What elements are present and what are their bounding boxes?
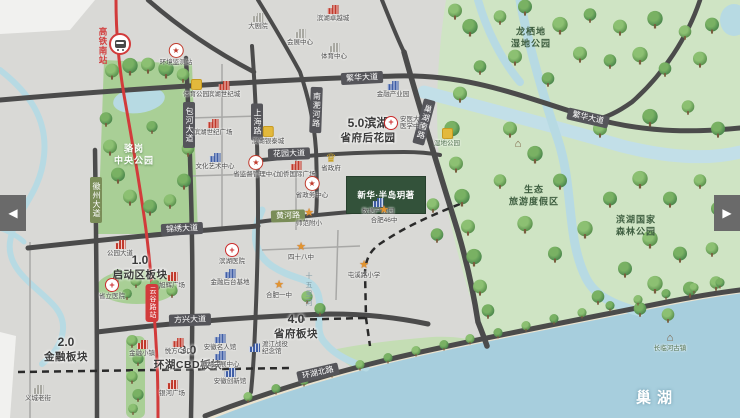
poi-label: 金融小镇	[129, 350, 155, 357]
poi-滨湖会展中心: 滨湖会展中心	[201, 351, 240, 368]
red-marker-icon	[167, 380, 178, 389]
poi-label: 体育公园	[183, 91, 209, 98]
house-marker-icon: ⌂	[667, 333, 674, 344]
poi-体育中心: 体育中心	[321, 43, 347, 60]
poi-渡江战役 纪念馆: 渡江战役 纪念馆	[249, 340, 288, 356]
poi-会展中心: 会展中心	[287, 29, 313, 46]
poi-label: 安医大 医学中心	[400, 116, 426, 131]
road-badge-方兴大道: 方兴大道	[169, 313, 211, 326]
poi-安徽名人馆: 安徽名人馆	[204, 334, 237, 351]
poi-环境监测站: ★环境监测站	[160, 43, 193, 66]
poi-house: ⌂	[515, 139, 522, 150]
poi-安医大 医学中心: +安医大 医学中心	[384, 115, 426, 131]
poi-label: 四十八中	[288, 254, 314, 261]
poi-label: 文化艺术中心	[196, 163, 235, 170]
poi-滨湖世纪广场: 滨湖世纪广场	[194, 119, 233, 136]
star-marker-icon: ★	[249, 155, 264, 170]
poi-label: 环境监测站	[160, 59, 193, 66]
grayb-marker-icon	[329, 43, 340, 52]
poi-label: 师范附小	[296, 220, 322, 227]
poi-label: 义城老街	[25, 395, 51, 402]
road-badge-南淝河路: 南淝河路	[309, 87, 323, 133]
gold-marker-icon	[263, 126, 274, 137]
road-badge-锦绣大道: 锦绣大道	[161, 222, 204, 236]
road-badge-徽州大道: 徽州大道	[90, 177, 102, 223]
poi-label: 屯溪路小学	[348, 272, 381, 279]
poi-label: 滨湖银泰城	[252, 138, 285, 145]
blue-marker-icon	[225, 269, 236, 278]
blue-marker-icon	[249, 344, 260, 353]
poi-湿地公园: 湿地公园	[434, 128, 460, 147]
poi-label: 省监督管理中心	[233, 171, 279, 178]
school-marker-icon: ★	[359, 260, 369, 271]
poi-label: 会展中心	[287, 39, 313, 46]
poi-label: 湿地公园	[434, 140, 460, 147]
poi-文化艺术中心: 文化艺术中心	[196, 153, 235, 170]
poi-省政府: ♛省政府	[321, 152, 341, 172]
water-label: 十五里河	[303, 272, 313, 308]
poi-label: 长临河古镇	[654, 345, 687, 352]
poi-滨湖银泰城: 滨湖银泰城	[252, 126, 285, 145]
red-marker-icon	[291, 161, 302, 170]
red-marker-icon	[115, 240, 126, 249]
poi-label: 安徽创新馆	[214, 378, 247, 385]
cross-marker-icon: +	[225, 243, 239, 257]
poi-义城老街: 义城老街	[25, 385, 51, 402]
map-stage: 新华·半岛玥著 高铁南站 云谷路站 1.0启动区板块2.0金融板块3.0环湖CB…	[0, 0, 740, 418]
poi-滨湖卓越城: 滨湖卓越城	[317, 5, 350, 22]
poi-label: 旭辉广场	[159, 282, 185, 289]
poi-label: 滨湖卓越城	[317, 15, 350, 22]
school-marker-icon: ★	[274, 280, 284, 291]
poi-label: 滨湖世纪城	[208, 91, 241, 98]
poi-label: 省政府	[321, 165, 341, 172]
red-marker-icon	[167, 272, 178, 281]
poi-合肥一中: ★合肥一中	[266, 280, 292, 299]
red-marker-icon	[328, 5, 339, 14]
poi-师范附小: ★师范附小	[296, 208, 322, 227]
park-marker-icon	[442, 128, 453, 139]
park-label: 龙栖地 湿地公园	[511, 26, 551, 49]
poi-label: 渡江战役 纪念馆	[262, 341, 288, 356]
cross-marker-icon: +	[105, 278, 119, 292]
school-marker-icon: ★	[296, 242, 306, 253]
grayb-marker-icon	[253, 13, 264, 22]
poi-金融小镇: 金融小镇	[129, 340, 155, 357]
poi-省立医院: +省立医院	[99, 278, 125, 300]
labels-layer: 新华·半岛玥著 高铁南站 云谷路站 1.0启动区板块2.0金融板块3.0环湖CB…	[0, 0, 740, 418]
red-marker-icon	[208, 119, 219, 128]
star-marker-icon: ★	[169, 43, 184, 58]
poi-银河广场: 银河广场	[159, 380, 185, 397]
train-station-icon	[109, 33, 131, 55]
poi-省监督管理中心: ★省监督管理中心	[233, 155, 279, 178]
poi-合肥46中: ★合肥46中	[371, 205, 398, 224]
poi-悦方CBD: 悦方CBD	[165, 338, 192, 355]
blue-marker-icon	[388, 81, 399, 90]
poi-长临河古镇: ⌂长临河古镇	[654, 333, 687, 352]
blue-marker-icon	[215, 334, 226, 343]
carousel-prev-button[interactable]: ◀	[0, 195, 26, 231]
poi-金融产业园: 金融产业园	[377, 81, 410, 98]
grayb-marker-icon	[33, 385, 44, 394]
red-marker-icon	[137, 340, 148, 349]
school-marker-icon: ★	[379, 205, 389, 216]
zone-label-2.0: 2.0金融板块	[44, 336, 88, 364]
road-badge-环湖北路: 环湖北路	[296, 362, 340, 383]
poi-滨湖医院: +滨湖医院	[219, 243, 245, 265]
carousel-next-button[interactable]: ▶	[714, 195, 740, 231]
metro-station-badge: 云谷路站	[146, 284, 159, 322]
zone-label-4.0: 4.0省府板块	[274, 313, 318, 341]
poi-屯溪路小学: ★屯溪路小学	[348, 260, 381, 279]
poi-label: 金融产业园	[377, 91, 410, 98]
poi-金融后台基地: 金融后台基地	[211, 269, 250, 286]
poi-省政务中心: ★省政务中心	[296, 176, 329, 199]
poi-label: 省政务中心	[296, 192, 329, 199]
school-marker-icon: ★	[304, 208, 314, 219]
poi-体育公园: 体育公园	[183, 79, 209, 98]
poi-四十八中: ★四十八中	[288, 242, 314, 261]
poi-公园大道: 公园大道	[107, 240, 133, 257]
poi-label: 滨湖世纪广场	[194, 129, 233, 136]
road-badge-繁华大道: 繁华大道	[566, 107, 610, 128]
poi-label: 体育中心	[321, 53, 347, 60]
poi-label: 合肥一中	[266, 292, 292, 299]
blue-marker-icon	[215, 351, 226, 360]
poi-label: 大剧院	[248, 23, 268, 30]
water-label: 巢湖	[636, 387, 678, 408]
crown-marker-icon: ♛	[326, 152, 337, 164]
cross-marker-icon: +	[384, 116, 398, 130]
poi-label: 合肥46中	[371, 217, 398, 224]
park-label: 生态 旅游度假区	[509, 184, 559, 207]
park-label: 滨湖国家 森林公园	[616, 214, 656, 237]
hsr-station-label: 高铁南站	[97, 27, 109, 65]
park-label: 骆岗 中央公园	[114, 143, 154, 166]
poi-label: 金融后台基地	[211, 279, 250, 286]
red-marker-icon	[219, 81, 230, 90]
grayb-marker-icon	[295, 29, 306, 38]
poi-label: 银河广场	[159, 390, 185, 397]
star-marker-icon: ★	[305, 176, 320, 191]
poi-label: 滨湖医院	[219, 258, 245, 265]
gold-marker-icon	[191, 79, 202, 90]
poi-大剧院: 大剧院	[248, 13, 268, 30]
poi-label: 省立医院	[99, 293, 125, 300]
poi-滨湖世纪城: 滨湖世纪城	[208, 81, 241, 98]
blue-marker-icon	[225, 368, 236, 377]
poi-label: 悦方CBD	[165, 348, 192, 355]
house-marker-icon: ⌂	[515, 139, 522, 150]
poi-label: 公园大道	[107, 250, 133, 257]
poi-旭辉广场: 旭辉广场	[159, 272, 185, 289]
blue-marker-icon	[210, 153, 221, 162]
red-marker-icon	[172, 338, 183, 347]
poi-安徽创新馆: 安徽创新馆	[214, 368, 247, 385]
